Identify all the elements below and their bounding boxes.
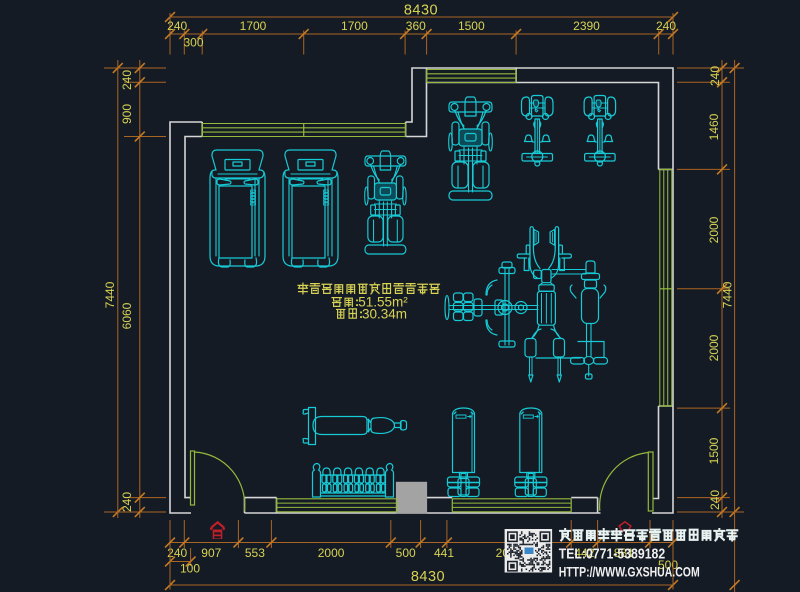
- svg-text:HTTP://WWW.GXSHUA.COM: HTTP://WWW.GXSHUA.COM: [559, 564, 700, 580]
- svg-text:240: 240: [708, 66, 722, 86]
- svg-text:553: 553: [245, 546, 265, 560]
- svg-text:300: 300: [183, 36, 203, 50]
- svg-text:2390: 2390: [573, 19, 600, 33]
- svg-text:240: 240: [167, 19, 187, 33]
- svg-text:240: 240: [120, 70, 134, 90]
- svg-text:907: 907: [201, 546, 221, 560]
- svg-text:2000: 2000: [707, 334, 721, 361]
- svg-text:7440: 7440: [721, 281, 735, 308]
- svg-text:240: 240: [708, 490, 722, 510]
- svg-text:240: 240: [120, 492, 134, 512]
- svg-text:1500: 1500: [707, 437, 721, 464]
- svg-text:1460: 1460: [707, 113, 721, 140]
- svg-text:240: 240: [656, 19, 676, 33]
- svg-text:1500: 1500: [458, 19, 485, 33]
- svg-text:2000: 2000: [707, 216, 721, 243]
- svg-text:8430: 8430: [411, 569, 445, 585]
- svg-text:1700: 1700: [341, 19, 368, 33]
- svg-text:900: 900: [120, 104, 134, 124]
- svg-text:360: 360: [406, 19, 426, 33]
- svg-text:100: 100: [180, 562, 200, 576]
- svg-text:500: 500: [396, 546, 416, 560]
- svg-text:TEL:0771-5389182: TEL:0771-5389182: [559, 547, 666, 563]
- svg-text:2000: 2000: [318, 546, 345, 560]
- svg-text:6060: 6060: [120, 302, 134, 329]
- svg-text:1700: 1700: [240, 19, 267, 33]
- svg-text:7440: 7440: [103, 281, 117, 308]
- svg-text:8430: 8430: [404, 3, 438, 19]
- svg-text:30.34m: 30.34m: [362, 306, 407, 321]
- svg-text:441: 441: [434, 546, 454, 560]
